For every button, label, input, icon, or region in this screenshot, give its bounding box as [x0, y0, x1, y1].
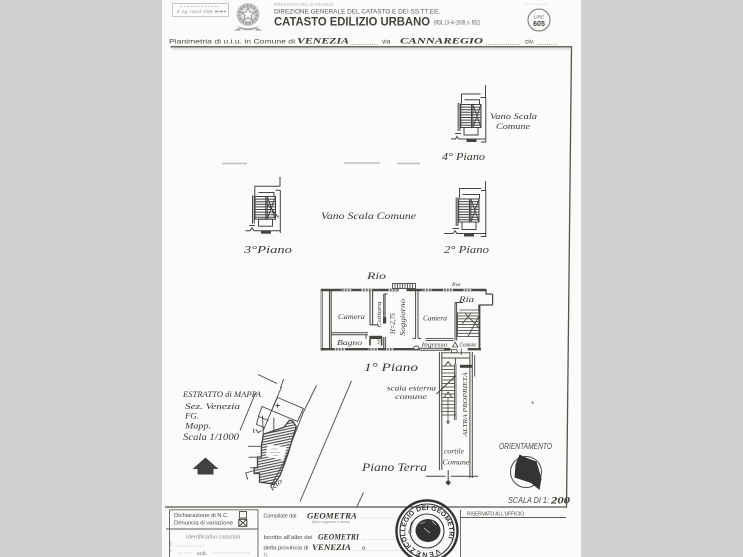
svg-text:DIREZIONE GENERALE DEL CATASTO: DIREZIONE GENERALE DEL CATASTO E DEI SS.…: [274, 9, 440, 16]
svg-text:Comune: Comune: [460, 342, 477, 349]
svg-text:CATASTO EDILIZIO URBANO: CATASTO EDILIZIO URBANO: [274, 16, 430, 29]
svg-text:(titolo cognome e nome): (titolo cognome e nome): [312, 520, 351, 524]
svg-text:Iscritto all’albo dei: Iscritto all’albo dei: [264, 535, 313, 541]
svg-text:4 ng rand 498: 4 ng rand 498: [177, 9, 213, 14]
svg-text:Scala 1/1000: Scala 1/1000: [183, 432, 239, 442]
svg-text:H=2,75: H=2,75: [390, 312, 397, 335]
svg-text:comune: comune: [395, 393, 428, 401]
svg-text:N.: N.: [264, 553, 269, 557]
svg-text:FG.: FG.: [184, 412, 199, 421]
svg-text:della provincia di: della provincia di: [264, 546, 309, 552]
svg-text:GEOMETRA: GEOMETRA: [307, 511, 357, 521]
svg-text:Vano Scala: Vano Scala: [490, 111, 537, 121]
svg-text:4° Piano: 4° Piano: [442, 151, 486, 163]
svg-text:GEOMETRI: GEOMETRI: [318, 533, 360, 542]
svg-text:200: 200: [550, 496, 571, 506]
svg-text:ALTRA PROPRIETÀ: ALTRA PROPRIETÀ: [461, 372, 469, 438]
svg-text:Ingresso: Ingresso: [420, 342, 448, 349]
svg-text:Camera: Camera: [338, 312, 365, 321]
svg-text:MINISTERO DELLE FINANZE: MINISTERO DELLE FINANZE: [274, 2, 334, 8]
svg-text:3°Piano: 3°Piano: [243, 244, 293, 256]
svg-text:VENEZIA: VENEZIA: [297, 36, 349, 46]
svg-text:Piano Terra: Piano Terra: [361, 462, 427, 474]
svg-text:Sez. Venezia: Sez. Venezia: [185, 402, 240, 411]
svg-text:CANNAREGIO: CANNAREGIO: [400, 36, 484, 46]
svg-text:ESTRATTO di MAPPA: ESTRATTO di MAPPA: [182, 390, 262, 399]
svg-text:civ.: civ.: [525, 39, 535, 46]
svg-text:Bagno: Bagno: [337, 338, 362, 347]
svg-text:Denuncia di variazione: Denuncia di variazione: [174, 521, 233, 527]
svg-text:cortile: cortile: [444, 448, 465, 456]
svg-text:Comune: Comune: [443, 459, 471, 467]
svg-text:Vano Scala Comune: Vano Scala Comune: [321, 211, 416, 221]
svg-text:Comune: Comune: [496, 121, 530, 131]
svg-text:Compilate dal: Compilate dal: [264, 514, 297, 520]
svg-text:*: *: [170, 550, 172, 556]
svg-text:via: via: [382, 39, 391, 46]
svg-text:Cottura: Cottura: [376, 301, 383, 328]
svg-text:Mapp.: Mapp.: [184, 422, 211, 431]
svg-text:scala esterna: scala esterna: [387, 385, 437, 393]
svg-text:― ·― ―· ――: ― ·― ―· ――: [524, 2, 549, 6]
svg-text:VENEZIA: VENEZIA: [312, 543, 351, 552]
svg-text:sub.: sub.: [197, 551, 207, 557]
svg-text:sud.: sud.: [376, 337, 381, 344]
svg-text:Rva: Rva: [451, 282, 461, 288]
svg-text:Identificativi catastali: Identificativi catastali: [186, 535, 240, 541]
svg-text:1: 1: [170, 542, 173, 548]
svg-text:RISERVATO ALL’UFFICIO: RISERVATO ALL’UFFICIO: [467, 512, 525, 518]
svg-text:SCALA DI 1:: SCALA DI 1:: [508, 496, 549, 505]
svg-text:2° Piano: 2° Piano: [444, 244, 490, 256]
svg-text:Planimetria di u.i.u. in Comun: Planimetria di u.i.u. in Comune di: [169, 39, 296, 46]
svg-text:Rio: Rio: [366, 272, 387, 282]
svg-text:Dichiarazione di N.C.: Dichiarazione di N.C.: [174, 513, 229, 519]
svg-text:Soggiorno: Soggiorno: [398, 299, 407, 336]
svg-text:(RDL 13–4–1939, n. 652): (RDL 13–4–1939, n. 652): [434, 20, 480, 27]
svg-text:LIRE: LIRE: [534, 15, 545, 21]
svg-text:605: 605: [533, 21, 545, 28]
svg-text:1° Piano: 1° Piano: [364, 362, 418, 374]
svg-text:ORIENTAMENTO: ORIENTAMENTO: [499, 442, 553, 451]
svg-text:Camera: Camera: [423, 314, 447, 323]
